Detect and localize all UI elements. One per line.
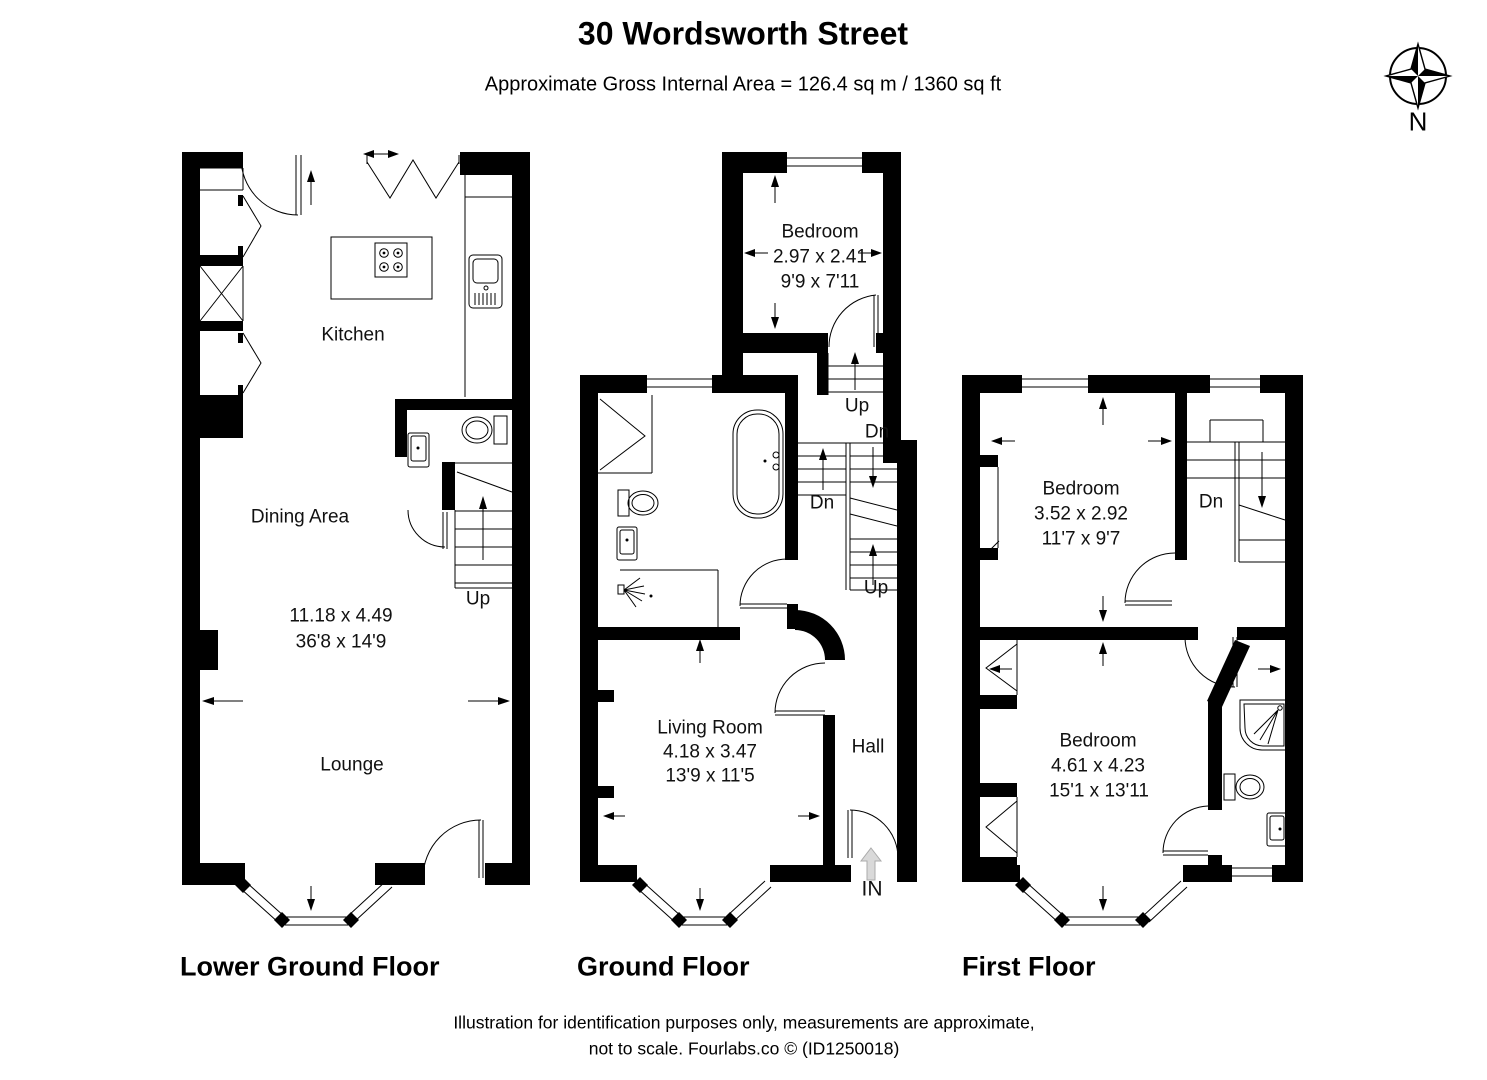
lgf-bay-window bbox=[182, 863, 530, 928]
page-title: 30 Wordsworth Street bbox=[578, 16, 908, 53]
ff-bedroom1-dims-metric-label: 3.52 x 2.92 bbox=[1034, 504, 1128, 527]
floorplan-drawing bbox=[0, 0, 1487, 1080]
gf-bedroom-dims-imperial-label: 9'9 x 7'11 bbox=[781, 272, 860, 295]
lgf-rear-door bbox=[423, 820, 483, 878]
shower-icon bbox=[618, 570, 718, 627]
kitchen-island-icon bbox=[331, 237, 432, 299]
entry-arrow-icon bbox=[861, 848, 881, 880]
lower-ground-floor-plan bbox=[182, 150, 530, 928]
gf-dn1-label: Dn bbox=[865, 422, 889, 445]
door-top-entrance bbox=[241, 155, 315, 215]
ff-bedroom1-dims-imperial-label: 11'7 x 9'7 bbox=[1042, 529, 1121, 552]
ff-dn-label: Dn bbox=[1199, 492, 1223, 515]
bath-icon bbox=[733, 410, 783, 518]
dining-area-label: Dining Area bbox=[251, 507, 349, 530]
ff-ensuite-door bbox=[1163, 806, 1208, 855]
living-dims-imperial-label: 13'9 x 11'5 bbox=[665, 766, 754, 789]
hall-label: Hall bbox=[852, 737, 885, 760]
toilet-icon bbox=[1224, 774, 1264, 800]
bifold-doors bbox=[363, 150, 459, 198]
gf-upper-stairs bbox=[828, 352, 883, 395]
ff-bedroom1-alcove bbox=[980, 455, 999, 560]
kitchen-label: Kitchen bbox=[321, 325, 384, 348]
basin-icon bbox=[1267, 813, 1287, 846]
page-subtitle: Approximate Gross Internal Area = 126.4 … bbox=[485, 74, 1001, 97]
compass-north-label: N bbox=[1409, 107, 1428, 138]
lower-ground-floor-title: Lower Ground Floor bbox=[180, 952, 439, 983]
gf-bay-window bbox=[580, 865, 797, 928]
kitchen-counter bbox=[465, 175, 512, 397]
compass-icon bbox=[1386, 44, 1450, 108]
gf-bathroom bbox=[598, 395, 787, 627]
gf-bedroom-door bbox=[829, 295, 878, 347]
gf-up2-label: Up bbox=[864, 578, 888, 601]
ff-ensuite bbox=[1163, 640, 1303, 882]
ff-bedroom2-wardrobes bbox=[980, 640, 1017, 865]
living-dims-metric-label: 4.18 x 3.47 bbox=[663, 742, 757, 765]
first-floor-title: First Floor bbox=[962, 952, 1096, 983]
lgf-up-label: Up bbox=[466, 589, 490, 612]
gf-bedroom-label: Bedroom bbox=[781, 222, 858, 245]
toilet-icon bbox=[462, 416, 507, 444]
floorplan-page: 30 Wordsworth Street Approximate Gross I… bbox=[0, 0, 1487, 1080]
dining-dims-metric-label: 11.18 x 4.49 bbox=[289, 606, 392, 629]
gf-dn2-label: Dn bbox=[810, 493, 834, 516]
basin-icon bbox=[617, 527, 637, 560]
gf-up1-label: Up bbox=[845, 396, 869, 419]
basin-icon bbox=[408, 433, 429, 467]
lgf-dim-arrows bbox=[202, 697, 510, 911]
ff-bedroom2-dims-metric-label: 4.61 x 4.23 bbox=[1051, 756, 1145, 779]
lounge-label: Lounge bbox=[320, 755, 383, 778]
ground-floor-title: Ground Floor bbox=[577, 952, 749, 983]
entrance-in-label: IN bbox=[862, 876, 883, 901]
gf-living-door bbox=[775, 663, 825, 715]
disclaimer-line1: Illustration for identification purposes… bbox=[453, 1013, 1034, 1034]
disclaimer-line2: not to scale. Fourlabs.co © (ID1250018) bbox=[589, 1039, 900, 1060]
toilet-icon bbox=[618, 490, 658, 516]
gf-bedroom-dims-metric-label: 2.97 x 2.41 bbox=[773, 247, 867, 270]
ff-bedroom1-door bbox=[1125, 553, 1175, 605]
kitchen-sink-icon bbox=[469, 255, 502, 308]
gf-front-door bbox=[848, 810, 898, 880]
gf-bathroom-door bbox=[740, 559, 787, 608]
living-room-label: Living Room bbox=[657, 718, 763, 741]
ff-bedroom2-label: Bedroom bbox=[1059, 731, 1136, 754]
left-closet-column bbox=[200, 168, 261, 438]
shower-tray-icon bbox=[1240, 700, 1288, 750]
first-floor-plan bbox=[962, 375, 1303, 928]
gf-main-stairs bbox=[798, 443, 897, 590]
lgf-stairs-up bbox=[442, 462, 512, 588]
ff-bay-window bbox=[962, 865, 1222, 928]
ff-bedroom1-label: Bedroom bbox=[1042, 479, 1119, 502]
ff-bedroom2-dims-imperial-label: 15'1 x 13'11 bbox=[1049, 781, 1149, 804]
dining-dims-imperial-label: 36'8 x 14'9 bbox=[296, 632, 387, 655]
